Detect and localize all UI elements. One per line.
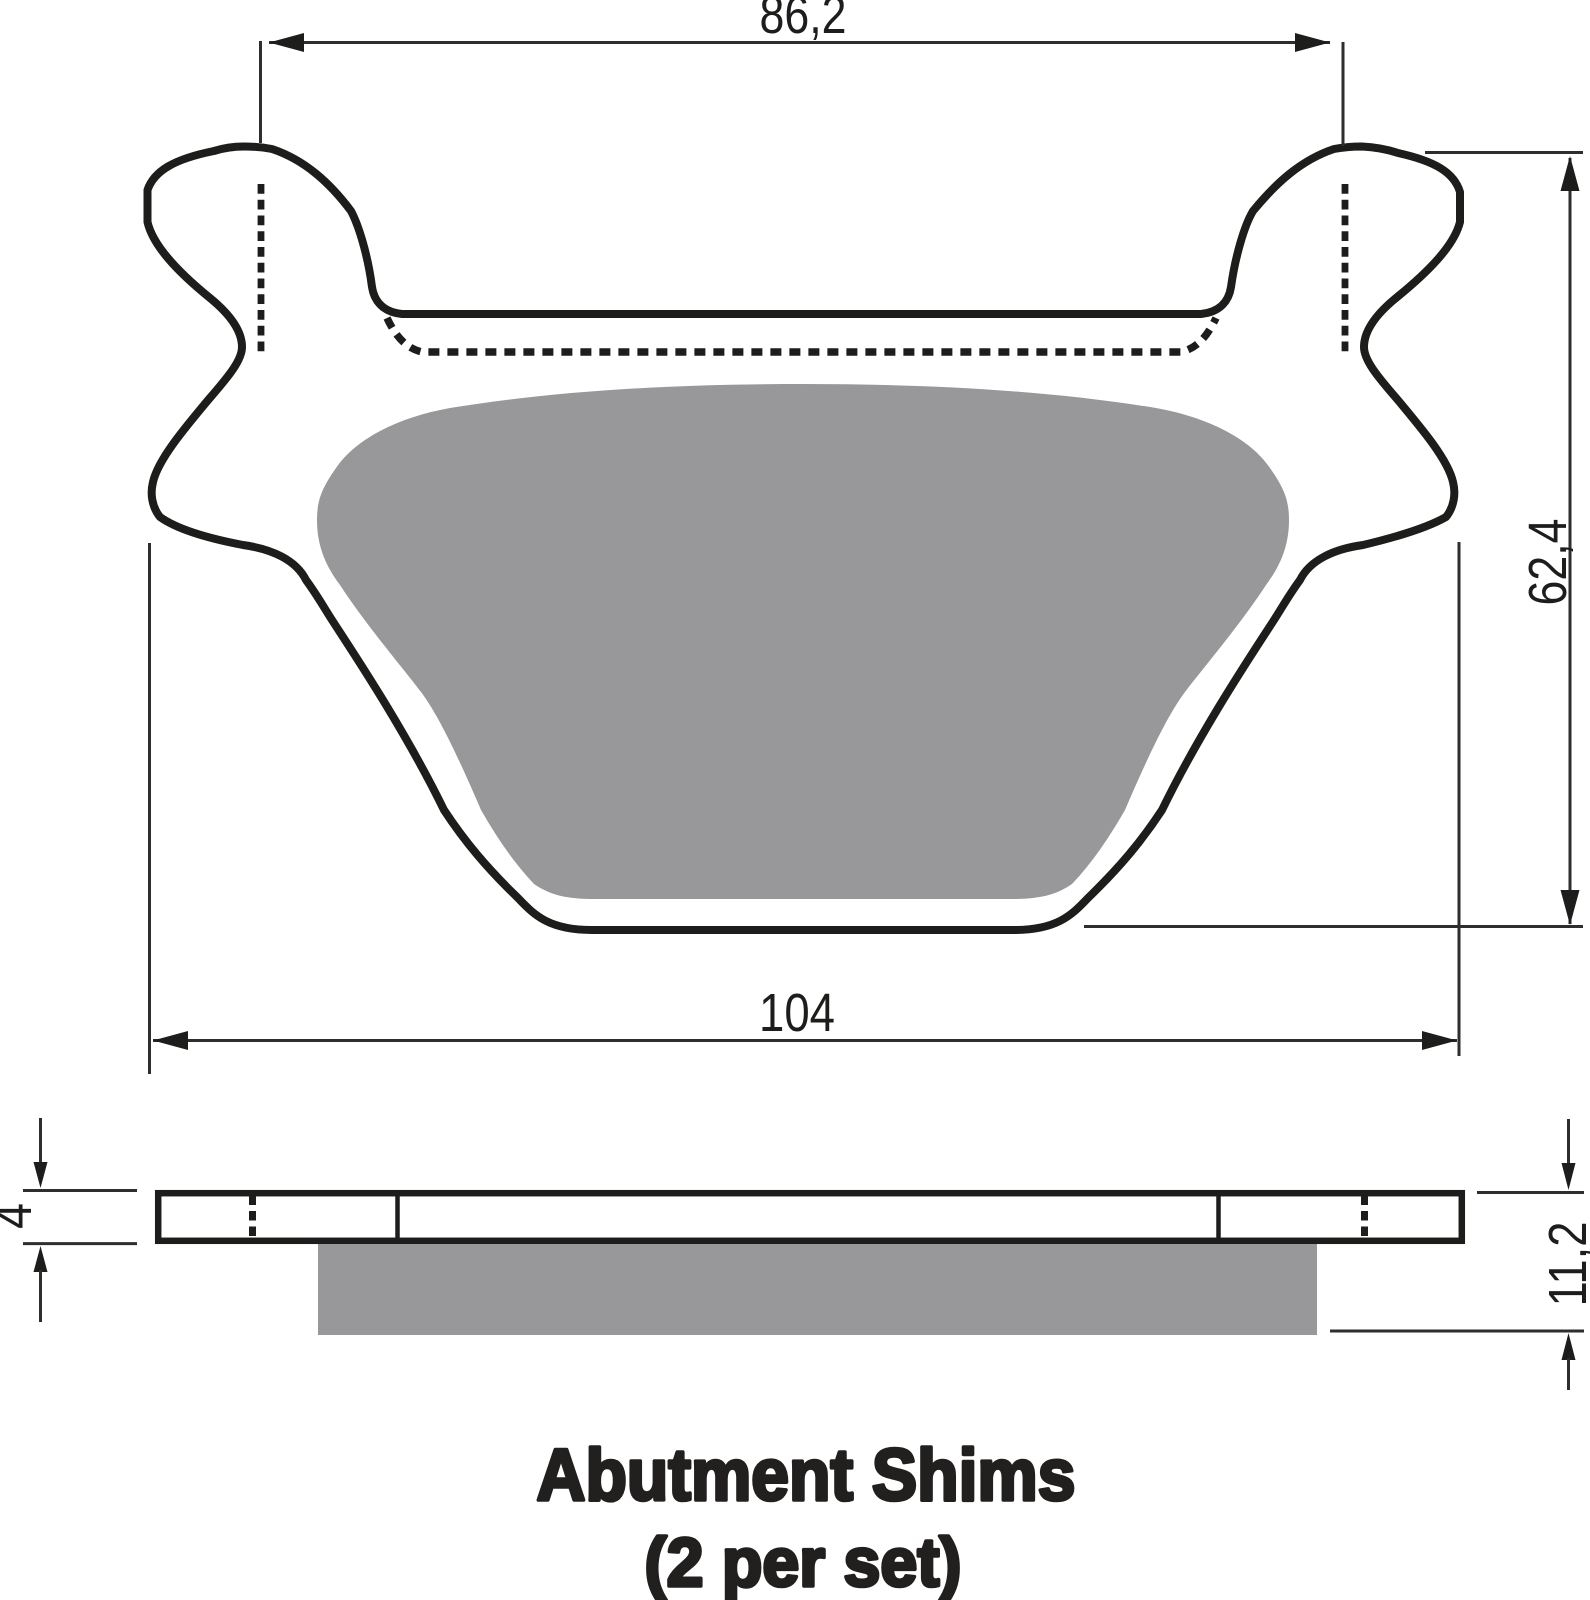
svg-text:104: 104	[759, 983, 835, 1043]
svg-text:(2 per set): (2 per set)	[645, 1524, 962, 1600]
svg-text:86,2: 86,2	[760, 0, 847, 45]
svg-text:11,2: 11,2	[1538, 1222, 1590, 1307]
svg-text:62,4: 62,4	[1518, 519, 1578, 606]
svg-text:4: 4	[0, 1203, 43, 1229]
svg-text:Abutment Shims: Abutment Shims	[537, 1435, 1076, 1516]
